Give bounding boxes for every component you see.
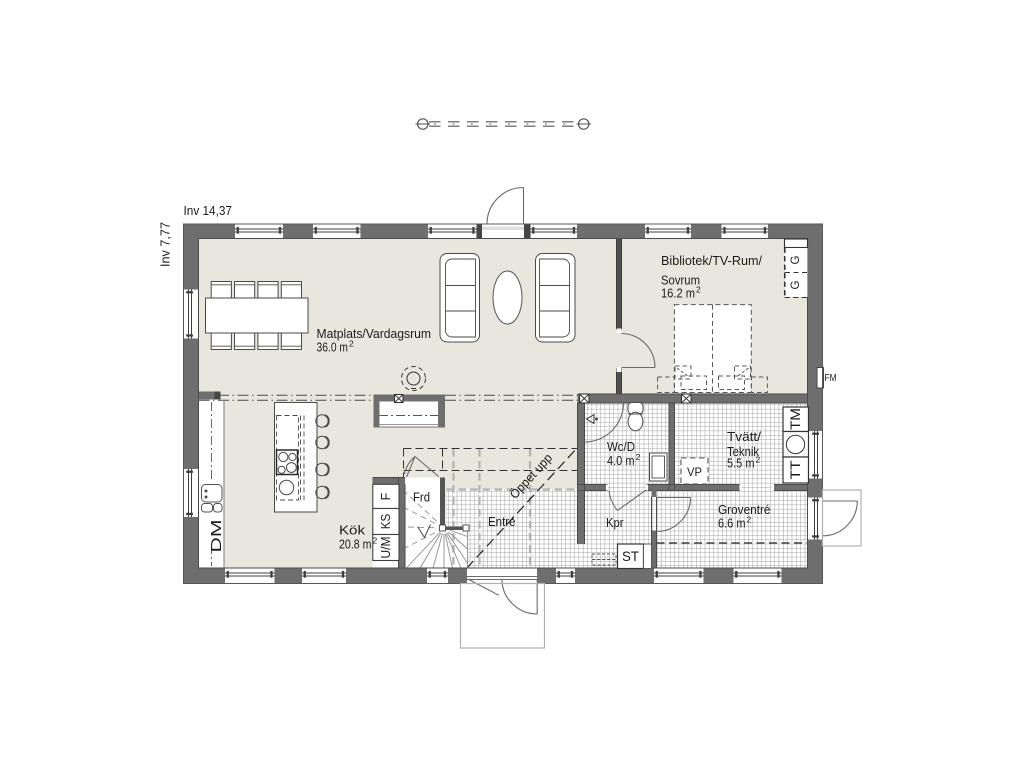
- svg-text:Wc/D: Wc/D: [607, 439, 635, 454]
- svg-text:KS: KS: [379, 514, 393, 530]
- svg-text:FM: FM: [825, 372, 837, 384]
- svg-text:U/M: U/M: [379, 537, 393, 559]
- svg-text:2: 2: [349, 339, 354, 349]
- svg-text:TT: TT: [788, 461, 803, 480]
- svg-text:Bibliotek/TV-Rum/: Bibliotek/TV-Rum/: [661, 253, 762, 268]
- svg-text:5.5 m: 5.5 m: [727, 456, 755, 471]
- svg-text:2: 2: [696, 285, 701, 295]
- svg-text:16.2 m: 16.2 m: [661, 286, 695, 301]
- svg-text:2: 2: [756, 455, 761, 465]
- svg-text:Tvätt/: Tvätt/: [727, 429, 761, 444]
- svg-text:2: 2: [636, 452, 641, 462]
- svg-text:Inv 14,37: Inv 14,37: [184, 204, 233, 218]
- svg-text:VP: VP: [687, 465, 702, 479]
- svg-text:G: G: [790, 255, 802, 264]
- svg-text:Entré: Entré: [488, 514, 516, 529]
- svg-text:ST: ST: [622, 549, 639, 564]
- svg-text:TM: TM: [788, 408, 803, 430]
- svg-text:2: 2: [747, 515, 752, 525]
- svg-text:F: F: [379, 492, 393, 500]
- svg-text:Frd: Frd: [413, 490, 430, 505]
- svg-text:Kpr: Kpr: [606, 515, 624, 530]
- svg-text:36.0 m: 36.0 m: [317, 340, 349, 355]
- svg-text:DM: DM: [208, 520, 225, 553]
- svg-text:Inv 7,77: Inv 7,77: [159, 222, 173, 267]
- svg-text:6.6 m: 6.6 m: [718, 516, 746, 531]
- svg-text:2: 2: [373, 536, 378, 546]
- svg-text:4.0 m: 4.0 m: [607, 453, 635, 468]
- svg-text:Kök: Kök: [339, 523, 366, 538]
- svg-text:20.8 m: 20.8 m: [339, 537, 372, 552]
- svg-text:G: G: [790, 280, 802, 289]
